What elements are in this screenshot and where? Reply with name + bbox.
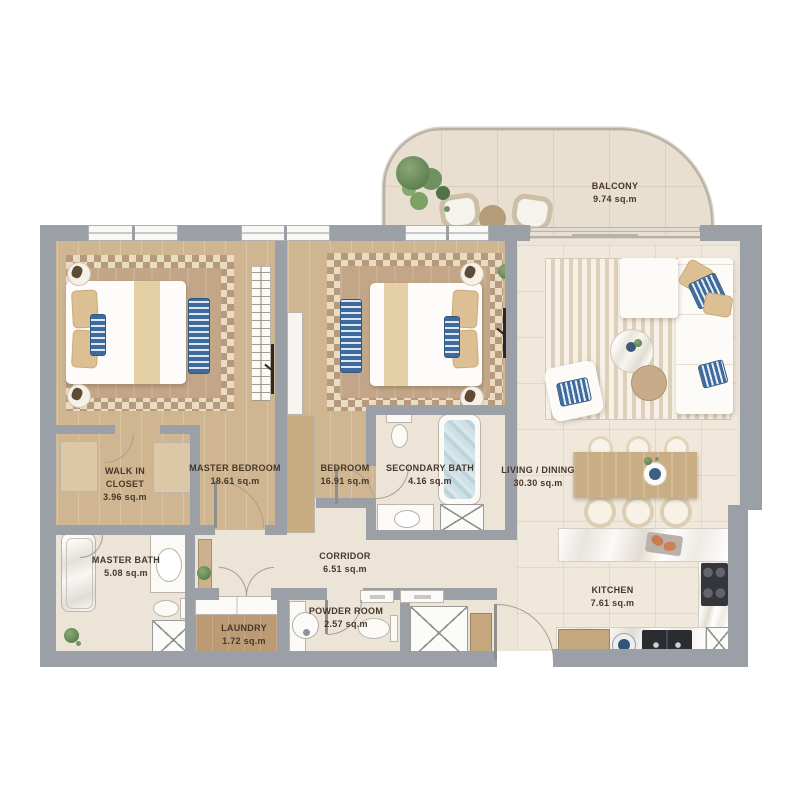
kitchen-stool: [660, 496, 692, 528]
side-table: [631, 365, 667, 401]
balcony-sliding-door: [530, 227, 700, 232]
bath-plant: [64, 628, 79, 643]
wall-corridor-north: [56, 525, 215, 535]
appliance-tag: [360, 590, 394, 603]
window-mullion: [446, 226, 449, 240]
room-name: BALCONY: [572, 180, 658, 193]
room-name: KITCHEN: [570, 584, 655, 597]
room-name: WALK IN CLOSET: [92, 465, 158, 491]
bedroom-bench: [340, 299, 362, 373]
salmon-piece: [663, 541, 676, 551]
bedroom-cushion: [444, 316, 460, 358]
room-name: SECONDARY BATH: [378, 462, 482, 475]
wall-bottom-kitchen: [553, 649, 748, 667]
room-name: BEDROOM: [305, 462, 385, 475]
wall-top: [330, 225, 405, 241]
window-bedroom: [405, 225, 489, 241]
room-label-bedroom: BEDROOM 16.91 sq.m: [305, 462, 385, 488]
window-wardrobe: [241, 225, 330, 241]
vanity-sink: [394, 510, 420, 528]
kitchen-stool: [584, 496, 616, 528]
room-name: MASTER BATH: [86, 554, 166, 567]
wall-corridor-north: [265, 525, 287, 535]
room-label-master-bedroom: MASTER BEDROOM 18.61 sq.m: [180, 462, 290, 488]
room-area: 3.96 sq.m: [92, 491, 158, 504]
kitchen-stool: [622, 496, 654, 528]
room-name: MASTER BEDROOM: [180, 462, 290, 475]
dining-centerpiece-plant: [644, 457, 652, 465]
wall-top: [178, 225, 241, 241]
master-wardrobe: [251, 266, 271, 402]
floor-plan: BALCONY 9.74 sq.m MASTER BEDROOM 18.61 s…: [0, 0, 800, 800]
balcony-plant: [396, 156, 430, 190]
wall-right-upper: [740, 225, 762, 510]
wall-bath-left: [366, 405, 376, 466]
room-label-living-dining: LIVING / DINING 30.30 sq.m: [483, 464, 593, 490]
room-label-master-bath: MASTER BATH 5.08 sq.m: [86, 554, 166, 580]
room-label-secondary-bath: SECONDARY BATH 4.16 sq.m: [378, 462, 482, 488]
bedroom-closet: [287, 312, 303, 415]
room-label-corridor: CORRIDOR 6.51 sq.m: [305, 550, 385, 576]
room-area: 30.30 sq.m: [483, 477, 593, 490]
room-area: 4.16 sq.m: [378, 475, 482, 488]
kitchen-peninsula-counter: [558, 528, 730, 562]
sofa-pillow-tan: [702, 292, 733, 319]
wall-masterbath-east: [185, 535, 195, 655]
master-bedroom-bench: [188, 298, 210, 374]
room-label-balcony: BALCONY 9.74 sq.m: [572, 180, 658, 206]
room-area: 16.91 sq.m: [305, 475, 385, 488]
coffee-table-plant: [634, 339, 642, 347]
window-mullion: [284, 226, 287, 240]
wall-corridor-south: [195, 588, 219, 600]
bathtub: [438, 414, 481, 505]
balcony-sliding-door-leaf: [572, 234, 638, 238]
room-area: 1.72 sq.m: [205, 635, 283, 648]
room-area: 2.57 sq.m: [298, 618, 394, 631]
corridor-plant: [197, 566, 211, 580]
bath-vanity: [377, 504, 434, 531]
wall-bath-south: [366, 530, 517, 540]
wall-bedroom-living-divider: [505, 240, 517, 540]
window-master-bedroom: [88, 225, 178, 241]
cooktop: [701, 563, 728, 606]
window-mullion: [132, 226, 135, 240]
room-area: 6.51 sq.m: [305, 563, 385, 576]
wall-powder-east: [400, 598, 410, 658]
wall-walkin-top: [56, 425, 115, 434]
room-name: LAUNDRY: [205, 622, 283, 635]
sofa-section-top: [620, 258, 678, 318]
entrance-door-leaf: [494, 604, 497, 660]
tag-mark: [414, 595, 431, 599]
room-label-powder-room: POWDER ROOM 2.57 sq.m: [298, 605, 394, 631]
wall-top: [489, 225, 530, 241]
toilet-tank: [386, 414, 412, 423]
room-label-kitchen: KITCHEN 7.61 sq.m: [570, 584, 655, 610]
wall-walkin-top: [160, 425, 190, 434]
dining-centerpiece-bowl: [649, 468, 661, 480]
room-name: CORRIDOR: [305, 550, 385, 563]
shaft-secondary-bath: [440, 504, 484, 532]
room-name: LIVING / DINING: [483, 464, 593, 477]
wall-bottom-left: [40, 651, 497, 667]
master-bed-cushion: [90, 314, 106, 356]
bedroom-bed-runner: [384, 283, 408, 386]
room-area: 18.61 sq.m: [180, 475, 290, 488]
room-label-laundry: LAUNDRY 1.72 sq.m: [205, 622, 283, 648]
toilet-bowl: [391, 424, 408, 448]
room-area: 9.74 sq.m: [572, 193, 658, 206]
room-area: 5.08 sq.m: [86, 567, 166, 580]
wall-right-lower: [728, 505, 748, 667]
wall-bath-top: [373, 405, 517, 415]
room-area: 7.61 sq.m: [570, 597, 655, 610]
tag-mark: [370, 595, 385, 599]
room-name: POWDER ROOM: [298, 605, 394, 618]
master-toilet-bowl: [153, 600, 179, 617]
wall-left: [40, 225, 56, 667]
master-bed-runner: [134, 281, 160, 384]
room-label-walk-in-closet: WALK IN CLOSET 3.96 sq.m: [92, 465, 158, 504]
appliance-tag: [400, 590, 444, 603]
